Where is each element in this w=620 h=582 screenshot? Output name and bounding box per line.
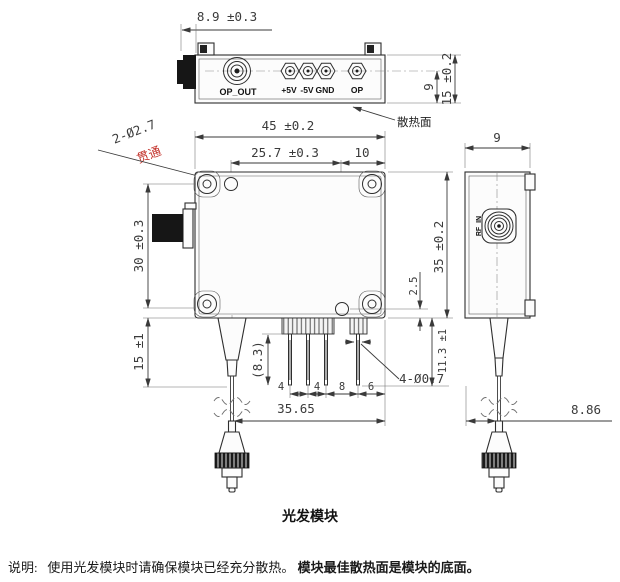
fc-connector-boot [219,432,245,453]
heatsink-label: 散热面 [397,115,432,129]
pin-label-op: OP [351,85,364,95]
dim-side-width: 9 [465,130,530,168]
dim-body-height: 35 ±0.2 [388,172,453,318]
fc-ferrule-tip-side [496,488,502,492]
fc-ferrule-tip [229,488,235,492]
svg-text:(8.3): (8.3) [250,341,265,379]
front-view-body [195,172,385,318]
dim-fiber-to-edge: 35.65 [234,401,385,421]
svg-text:4: 4 [278,381,284,393]
heatsink-callout: 散热面 [353,107,432,129]
dim-boot-length: 15 ±1 [131,318,227,387]
front-view: 45 ±0.2 25.7 ±0.3 10 2-Ø2.7 贯通 [98,116,449,492]
svg-text:9: 9 [493,130,501,145]
svg-text:30 ±0.3: 30 ±0.3 [131,220,146,273]
technical-drawing: OP_OUT +5V -5V GND OP 8.9 ±0.3 9 15 ±0.2… [0,0,620,545]
dim-pin-length: (8.3) [250,334,287,385]
pin-label-neg5v: -5V [300,85,314,95]
svg-text:6: 6 [368,381,374,393]
svg-text:8: 8 [339,381,345,393]
hole-through-note: 贯通 [134,143,163,166]
dim-fiber-offset: 8.86 [466,386,612,426]
svg-text:25.7 ±0.3: 25.7 ±0.3 [251,145,319,160]
svg-text:8.9 ±0.3: 8.9 ±0.3 [197,9,257,24]
svg-text:2.5: 2.5 [408,277,420,296]
fiber-pigtail-side [481,318,517,492]
figure-title: 光发模块 [0,506,620,526]
note-text-2: 模块最佳散热面是模块的底面。 [298,560,480,575]
note-prefix: 说明: [8,560,38,575]
svg-text:9: 9 [421,83,436,91]
dim-width-45: 45 ±0.2 [195,118,385,169]
svg-text:4: 4 [314,381,320,393]
fiber-pigtail-front [214,315,250,492]
dim-top-height: 15 ±0.2 [387,53,461,106]
op-out-label: OP_OUT [219,87,257,97]
side-view: 35 ±0.2 9 RF_IN [388,130,612,492]
pin-label-gnd: GND [316,85,335,95]
svg-text:15 ±0.2: 15 ±0.2 [439,53,454,106]
fc-connector-boot-side [486,432,512,453]
top-view: OP_OUT +5V -5V GND OP 8.9 ±0.3 9 15 ±0.2… [177,9,461,129]
svg-text:15 ±1: 15 ±1 [131,333,146,371]
note: 说明: 使用光发模块时请确保模块已经充分散热。 模块最佳散热面是模块的底面。 [8,557,612,576]
op-out-connector [224,58,251,85]
rf-connector-front-view [152,203,196,248]
pin-label-5v: +5V [281,85,297,95]
rf-connector-top-view [183,55,196,89]
svg-text:45 ±0.2: 45 ±0.2 [262,118,315,133]
side-tab-bottom [525,300,535,316]
fc-connector-knurl-side [482,453,516,468]
svg-text:11.3 ±1: 11.3 ±1 [437,329,449,373]
note-text-1: 使用光发模块时请确保模块已经充分散热。 [47,560,294,575]
drawing-page: OP_OUT +5V -5V GND OP 8.9 ±0.3 9 15 ±0.2… [0,0,620,582]
side-tab-top [525,174,535,190]
dim-connector-protrusion: 8.9 ±0.3 [181,9,272,53]
rf-in-label: RF_IN [476,216,483,236]
side-view-body [465,172,530,318]
pin-terminals [282,318,367,385]
svg-text:8.86: 8.86 [571,402,601,417]
svg-text:35.65: 35.65 [277,401,315,416]
svg-text:10: 10 [354,145,369,160]
fc-connector-knurl [215,453,249,468]
svg-text:2-Ø2.7: 2-Ø2.7 [110,116,158,146]
svg-text:35 ±0.2: 35 ±0.2 [431,221,446,274]
